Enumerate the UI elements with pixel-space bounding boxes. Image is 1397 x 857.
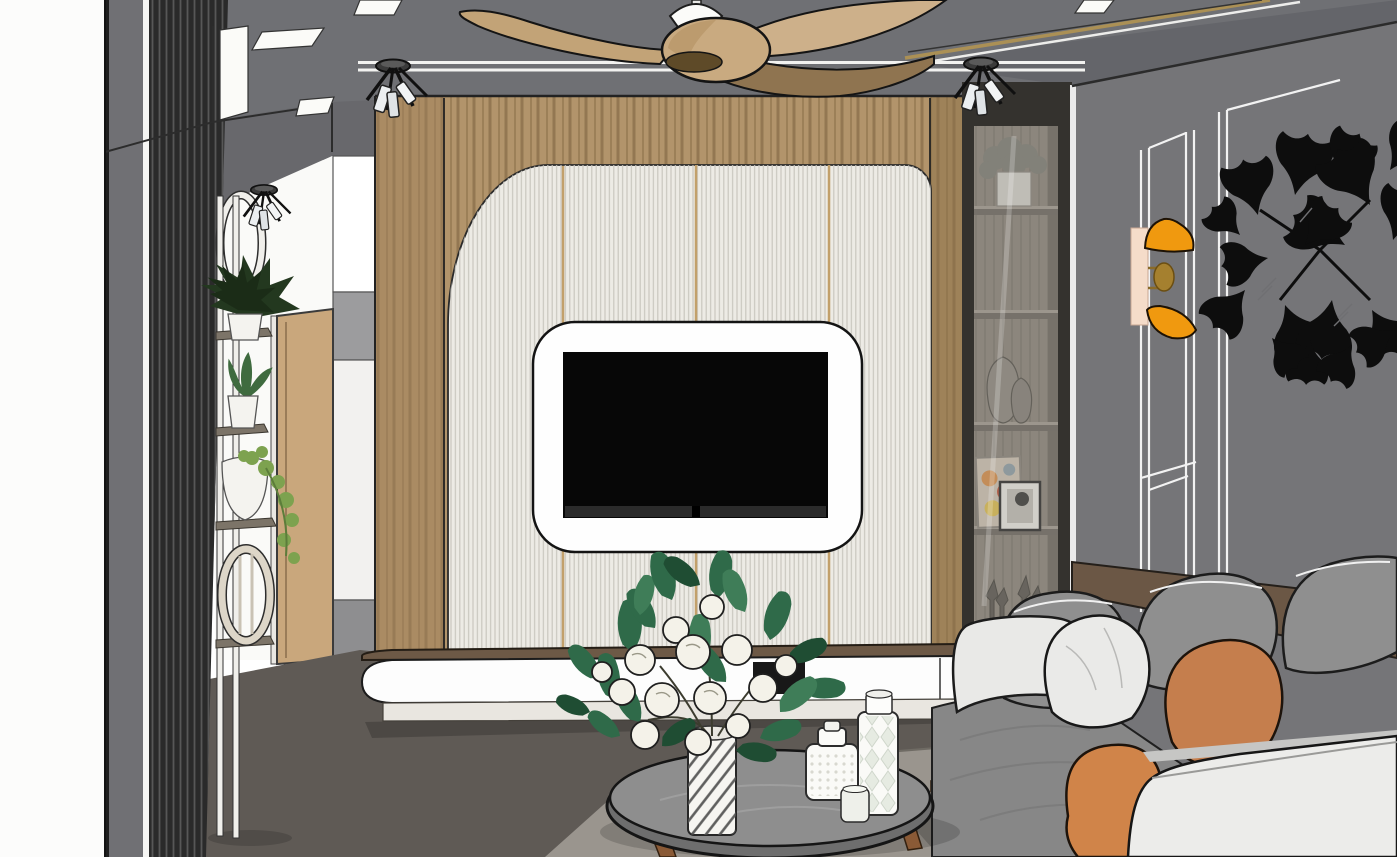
interior-render-canvas — [0, 0, 1397, 857]
white-pillow — [1045, 616, 1150, 728]
sconce-knob — [1154, 263, 1174, 291]
slat-gap-light — [143, 0, 149, 857]
tv-soundbar-notch — [692, 506, 700, 517]
cabinet-edge-highlight — [1070, 85, 1076, 645]
plant-pot — [228, 396, 258, 428]
plant-pot — [228, 314, 262, 340]
light-trough — [220, 26, 248, 120]
left-margin — [0, 0, 105, 857]
wood-pillar-right — [930, 96, 962, 660]
tv-screen — [563, 352, 828, 518]
wood-pillar-left — [375, 96, 445, 660]
hallway-cabinet — [333, 156, 375, 660]
left-wall-band — [105, 0, 145, 857]
